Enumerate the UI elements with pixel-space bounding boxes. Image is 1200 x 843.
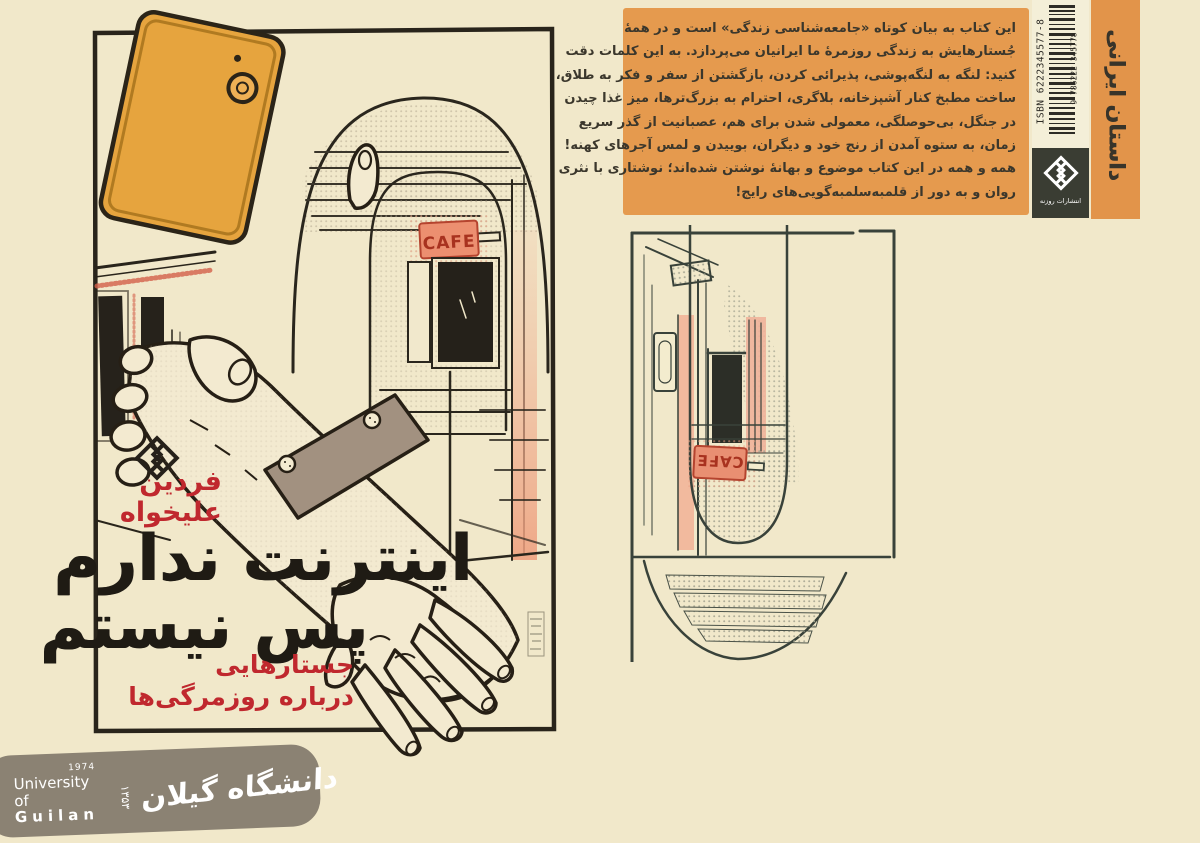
back-cover-illustration: CAFE <box>628 225 900 662</box>
university-emblem-icon <box>107 764 109 822</box>
back-cover-blurb: این کتاب به بیان کوتاه «جامعه‌شناسی زندگ… <box>623 8 1029 215</box>
cafe-sign-upside-down-text: CAFE <box>696 451 744 471</box>
university-name-persian: دانشگاه گیلان <box>141 760 339 815</box>
dark-door <box>438 262 493 362</box>
publisher-knot-icon <box>1041 153 1081 193</box>
cuff-button <box>364 412 380 428</box>
blurb-line: کنید: لنگه به لنگه‌پوشی، پذیرائی کردن، ب… <box>636 64 1016 87</box>
publisher-logo-box: انتشارات روزنه <box>1032 148 1089 218</box>
book-cover-spread: CAFE <box>0 0 1200 843</box>
blurb-line: ساخت مطبخ کنار آشپزخانه، بلاگری، احترام … <box>636 87 1016 110</box>
smartphone <box>98 9 286 245</box>
barcode-number: 9 786222 345778 <box>1070 0 1079 139</box>
university-name-line2: Guilan <box>15 806 100 826</box>
wall-plaque <box>654 333 676 391</box>
blurb-line: زمان، به ستوه آمدن از رنج خود و دیگران، … <box>636 134 1016 157</box>
cafe-sign-text: CAFE <box>422 232 476 255</box>
isbn-text: ISBN 6222345577-8 <box>1036 1 1047 143</box>
genre-label: داستان ایرانی <box>1103 29 1128 181</box>
book-subtitle-line2: درباره روزمرگی‌ها <box>128 682 354 712</box>
cuff-button <box>279 456 295 472</box>
artist-signature <box>528 612 544 656</box>
dark-window <box>712 355 742 443</box>
author-name: فردین علیخواه <box>120 466 222 528</box>
publisher-name: انتشارات روزنه <box>1032 197 1089 205</box>
university-year-persian: ۱۳۵۳ <box>118 785 132 799</box>
blurb-line: جُستارهایش به زندگی روزمرهٔ ما ایرانیان … <box>636 40 1016 63</box>
university-name-line1: University of <box>13 773 98 809</box>
blurb-line: همه و همه در این کتاب موضوع و بهانهٔ نوش… <box>636 157 1016 180</box>
isbn-barcode-block: ISBN 6222345577-8 9 786222 345778 <box>1032 0 1089 148</box>
book-subtitle-line1: جستارهایی <box>215 650 354 680</box>
university-of-guilan-banner: 1974 University of Guilan ۱۳۵۳ دانشگاه گ… <box>0 744 321 839</box>
book-title-line1: اینترنت ندارم <box>53 524 472 594</box>
blurb-line: روان و به دور از قلمبه‌سلمبه‌گویی‌های را… <box>636 181 1016 204</box>
blurb-line: در جنگل، بی‌حوصلگی، معمولی شدن برای هم، … <box>636 111 1016 134</box>
genre-strip: داستان ایرانی <box>1091 0 1140 219</box>
university-name-english: 1974 University of Guilan <box>13 763 99 826</box>
author-first-name: فردین <box>120 466 222 497</box>
blurb-line: این کتاب به بیان کوتاه «جامعه‌شناسی زندگ… <box>636 17 1016 40</box>
